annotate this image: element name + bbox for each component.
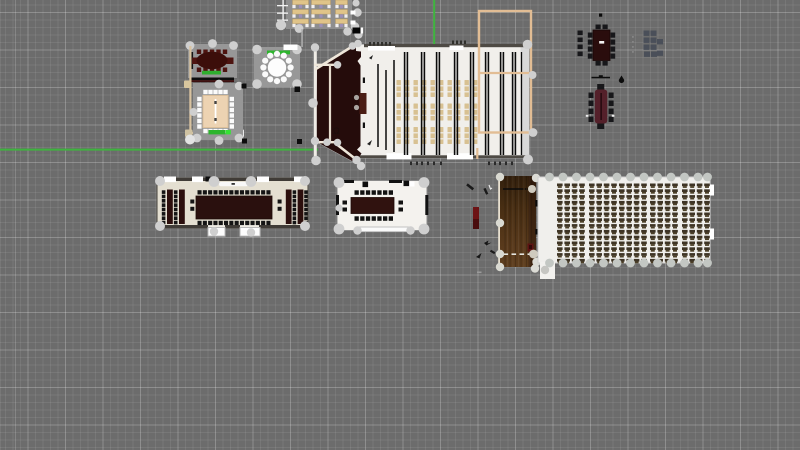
svg-text:Ω: Ω <box>333 126 340 136</box>
